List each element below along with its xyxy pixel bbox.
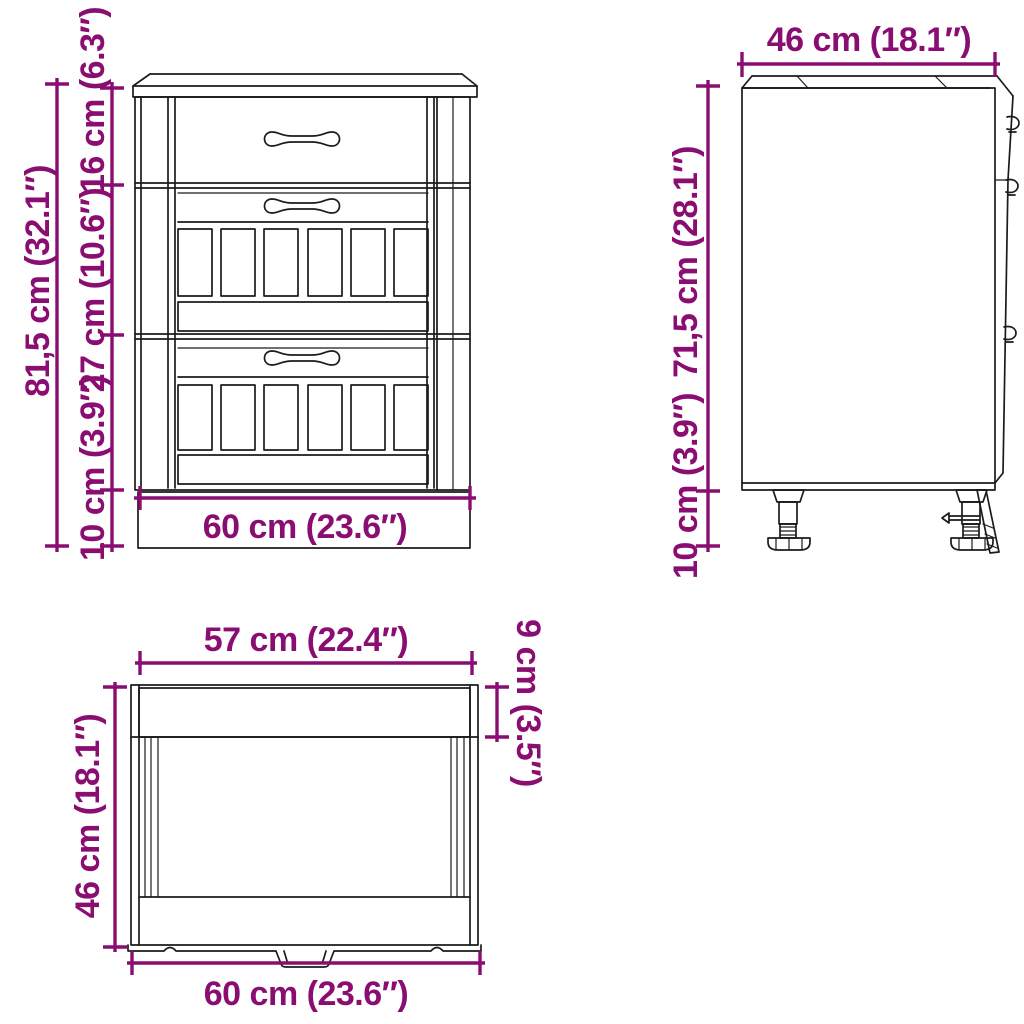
drawer-middle-panel xyxy=(178,193,428,331)
slat xyxy=(308,229,342,296)
dim-label-top-drawer: 16 cm (6.3″) xyxy=(74,7,112,193)
recessed-handle xyxy=(284,951,326,963)
dim-label-middle-drawer: 27 cm (10.6″) xyxy=(74,188,112,392)
drawer-bottom-slats xyxy=(178,385,428,450)
dim-label-total-width: 60 cm (23.6″) xyxy=(204,975,408,1013)
dim-top-total-width: 60 cm (23.6″) xyxy=(127,951,485,1013)
dim-top-depth: 46 cm (18.1″) xyxy=(69,682,127,952)
slat xyxy=(308,385,342,450)
side-panel xyxy=(742,88,1013,490)
worktop xyxy=(133,74,477,97)
slat xyxy=(264,385,298,450)
cabinet-dimension-diagram: 81,5 cm (32.1″) 16 cm (6.3″) 27 cm (10.6… xyxy=(0,0,1024,1024)
top-view-outline xyxy=(131,685,478,945)
dim-label-inner-width: 57 cm (22.4″) xyxy=(204,621,408,659)
slat xyxy=(178,229,212,296)
dim-label-front-width: 60 cm (23.6″) xyxy=(203,508,407,546)
dim-side-heights: 71,5 cm (28.1″) 10 cm (3.9″) xyxy=(667,80,720,579)
worktop-top-face xyxy=(131,688,478,737)
dim-label-top-depth: 46 cm (18.1″) xyxy=(69,714,107,918)
dim-label-carcass-height: 71,5 cm (28.1″) xyxy=(667,146,705,378)
dim-label-total-height: 81,5 cm (32.1″) xyxy=(19,165,57,397)
adjustable-foot-front xyxy=(768,490,810,550)
dim-top-inner-width: 57 cm (22.4″) xyxy=(135,621,477,675)
side-view-drawing xyxy=(742,76,1019,553)
slat xyxy=(351,385,385,450)
diagram-canvas: 81,5 cm (32.1″) 16 cm (6.3″) 27 cm (10.6… xyxy=(0,0,1024,1024)
drawer-handle xyxy=(265,199,340,213)
dim-top-worktop-depth: 9 cm (3.5″) xyxy=(485,619,547,787)
front-view: 81,5 cm (32.1″) 16 cm (6.3″) 27 cm (10.6… xyxy=(19,7,477,561)
drawer-middle-slats xyxy=(178,229,428,296)
dim-label-worktop-depth: 9 cm (3.5″) xyxy=(509,619,547,787)
front-view-drawing xyxy=(133,74,477,548)
slat xyxy=(178,385,212,450)
dim-front-total-height: 81,5 cm (32.1″) xyxy=(19,78,69,552)
foot-thread xyxy=(780,527,796,535)
top-view-drawing xyxy=(128,685,481,967)
dim-front-width: 60 cm (23.6″) xyxy=(134,486,476,546)
drawer-bottom-panel xyxy=(178,348,428,484)
drawer-gap xyxy=(135,183,470,188)
drawer-handle xyxy=(265,351,340,365)
dim-label-leg-height: 10 cm (3.9″) xyxy=(667,393,705,579)
top-view: 57 cm (22.4″) 9 cm (3.5″) 46 cm (18.1″) … xyxy=(69,619,547,1013)
drawer-gap xyxy=(135,334,470,339)
slat xyxy=(351,229,385,296)
dim-side-depth: 46 cm (18.1″) xyxy=(737,21,1000,77)
slat xyxy=(221,229,255,296)
fastener-screw xyxy=(942,513,980,523)
slat xyxy=(394,385,428,450)
dim-front-segments: 16 cm (6.3″) 27 cm (10.6″) 10 cm (3.9″) xyxy=(74,7,124,561)
foot-knurl xyxy=(776,538,802,550)
dim-label-side-depth: 46 cm (18.1″) xyxy=(767,21,971,59)
drawer-handle xyxy=(265,132,340,146)
side-worktop xyxy=(742,76,1013,96)
cabinet-body xyxy=(135,97,470,490)
slat xyxy=(264,229,298,296)
slat xyxy=(394,229,428,296)
side-view: 46 cm (18.1″) 71,5 cm (28.1″) 10 cm (3.9… xyxy=(667,21,1019,579)
dim-label-plinth: 10 cm (3.9″) xyxy=(74,375,112,561)
side-rails xyxy=(145,737,464,897)
slat xyxy=(221,385,255,450)
hinge-clip xyxy=(1007,117,1019,132)
